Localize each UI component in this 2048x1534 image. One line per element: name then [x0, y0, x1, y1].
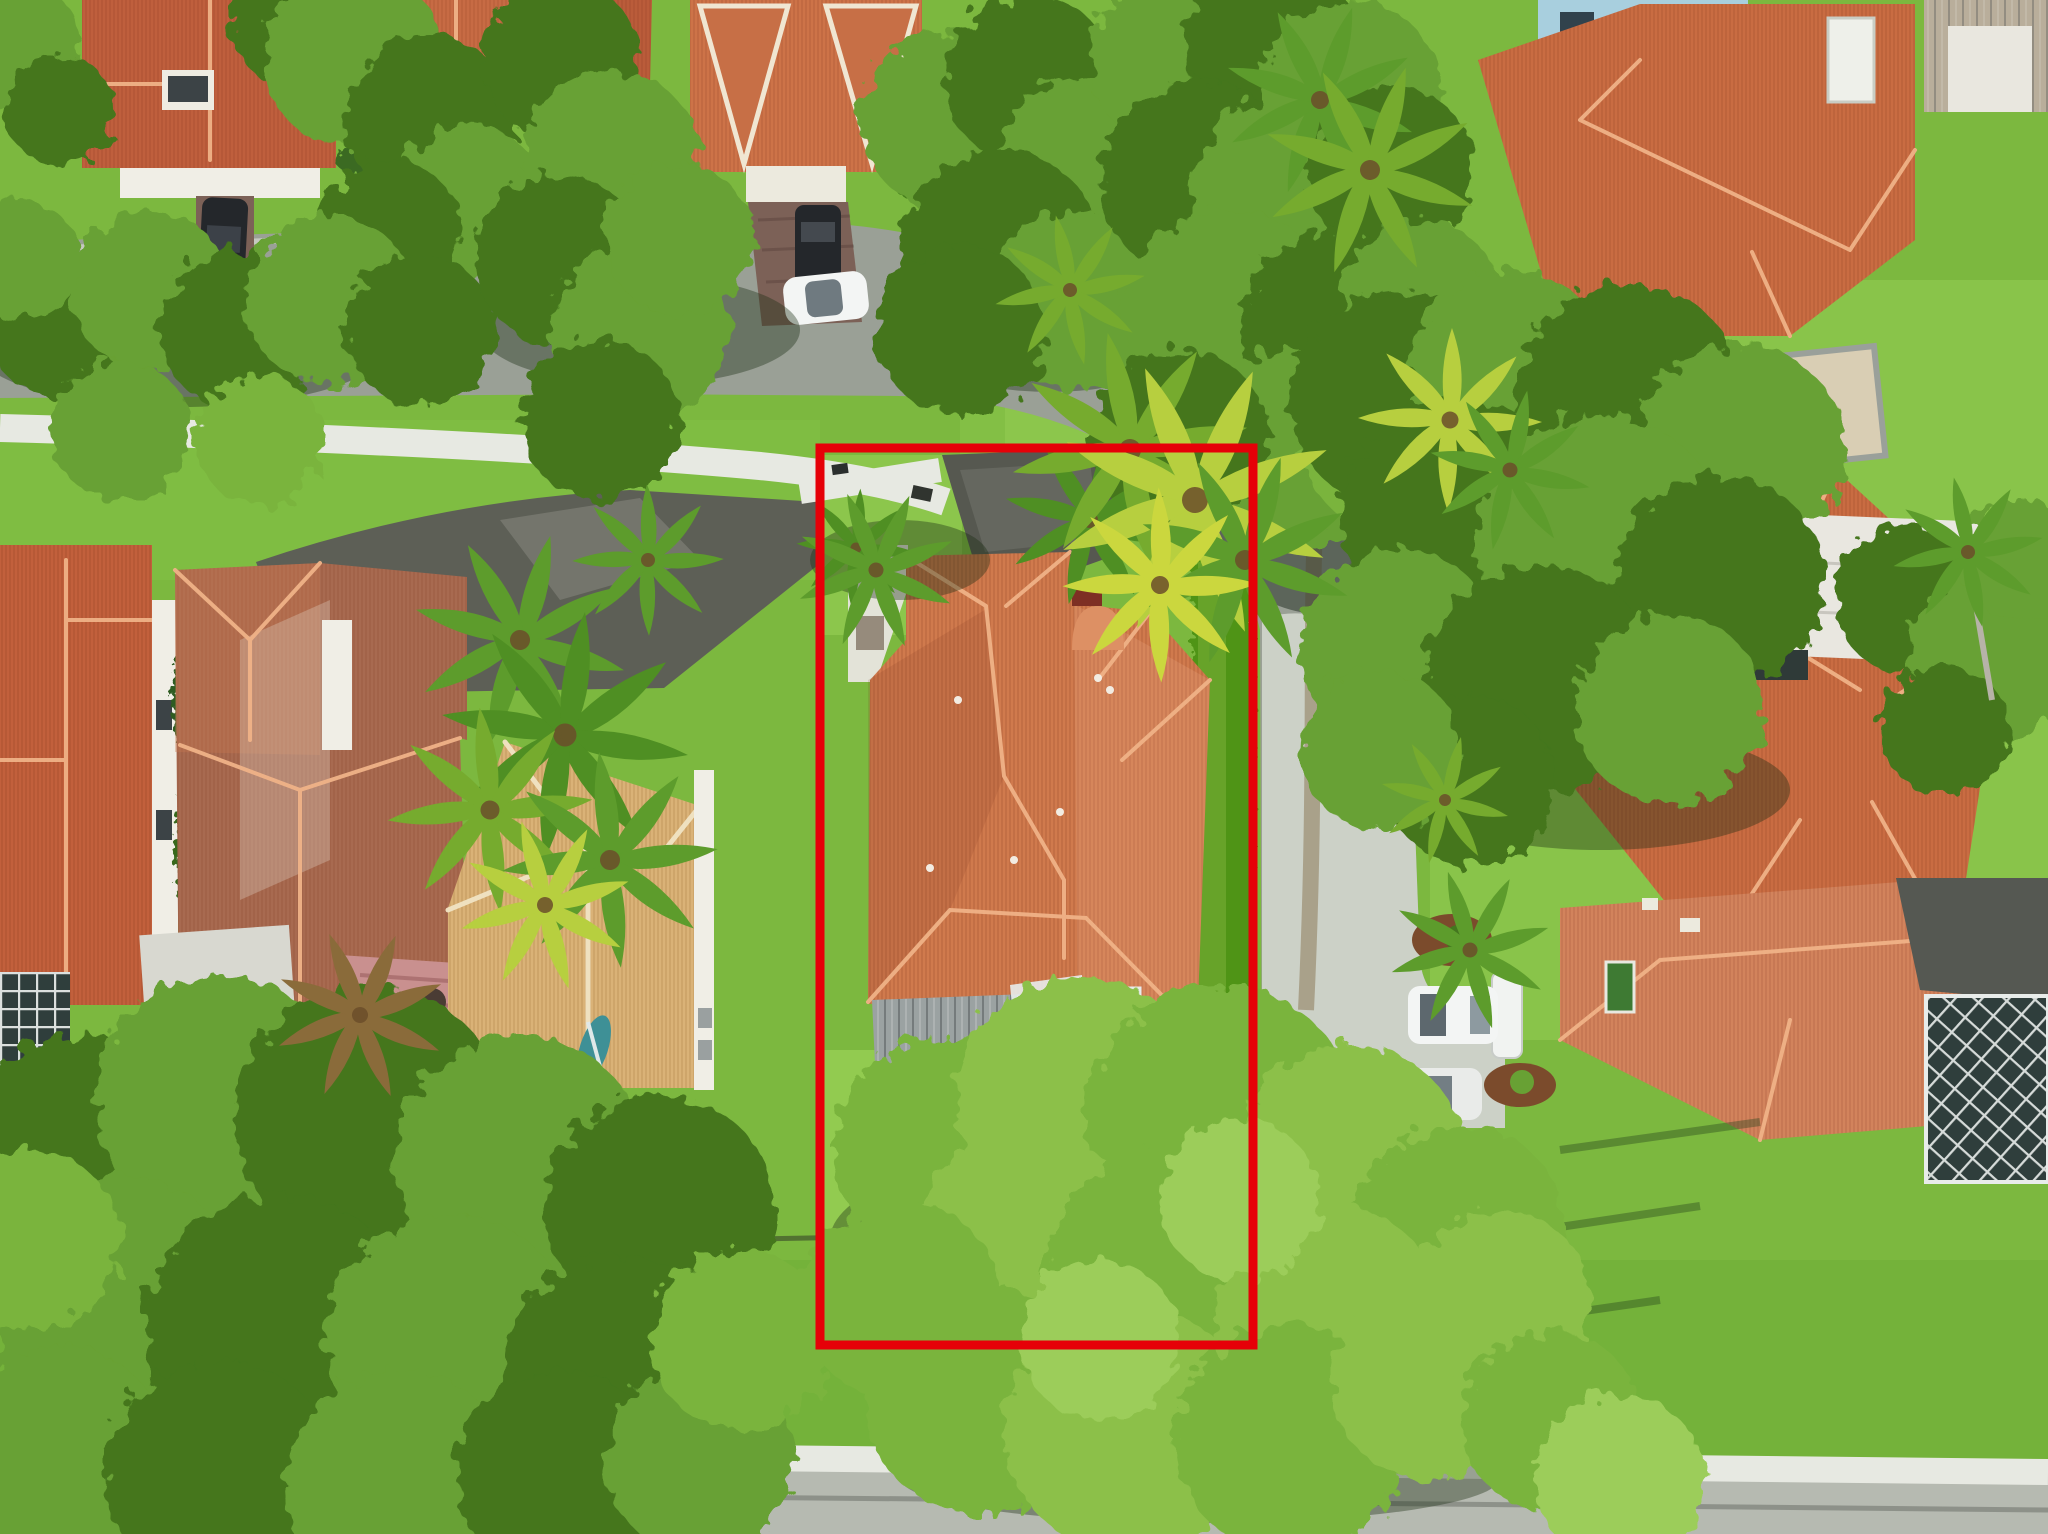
aerial-photo-canvas — [0, 0, 2048, 1534]
black-suv — [795, 205, 841, 285]
green-shutter — [1606, 962, 1634, 1012]
br-pool-screen — [1926, 996, 2048, 1182]
br-driveway — [1896, 878, 2048, 1002]
shed-top-right — [1924, 0, 2048, 112]
garage-door — [746, 166, 846, 202]
white-fence — [1828, 18, 1874, 102]
stone-bed — [856, 616, 884, 650]
aerial-photo — [0, 0, 2048, 1534]
